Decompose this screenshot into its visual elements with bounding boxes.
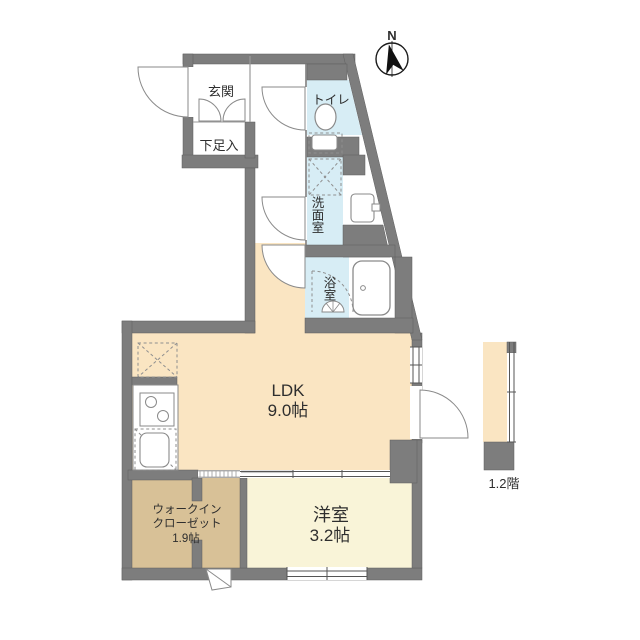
- door-swing-icon-east: [420, 390, 468, 438]
- wall-west-genkan: [183, 117, 193, 157]
- wall-wic-stub-top: [192, 478, 202, 501]
- north-arrow-icon: N: [376, 28, 408, 77]
- room-label-washroom: 洗面室: [312, 196, 325, 235]
- room-label-shoe: 下足入: [199, 138, 238, 153]
- room-size-wic: 1.9帖: [172, 531, 200, 545]
- door-swing-icon-toilet: [262, 87, 305, 130]
- wall-kitchen-stub: [132, 377, 177, 385]
- wall-wash-bath-divider: [305, 245, 395, 257]
- wall-bath-south: [305, 318, 413, 333]
- wall-bottom: [122, 568, 422, 580]
- wall-west-stub: [183, 54, 193, 67]
- door-swing-icon-washroom: [262, 197, 305, 240]
- floorplan-image: N 玄関 下足入 トイレ 洗面室 浴室 LDK 9.0帖 洋室 3.2帖 ウォー…: [0, 0, 640, 640]
- room-label-wic-2: クローゼット: [153, 517, 222, 530]
- louver-opening-symbol: [198, 470, 240, 478]
- wall-corridor-west: [245, 168, 255, 333]
- door-swing-icon-wic-south: [206, 569, 231, 590]
- wall-toilet-north: [307, 64, 347, 80]
- room-label-genkan: 玄関: [208, 84, 234, 99]
- stove-icon: [140, 393, 174, 426]
- wall-west: [122, 321, 132, 580]
- sliding-door-symbol: [240, 470, 390, 478]
- wall-wic-north: [128, 470, 198, 480]
- wall-pan-east: [343, 155, 365, 175]
- room-label-wic-1: ウォークイン: [153, 503, 222, 516]
- wall-top: [183, 54, 355, 64]
- floorplan-page: N 玄関 下足入 トイレ 洗面室 浴室 LDK 9.0帖 洋室 3.2帖 ウォー…: [0, 0, 640, 640]
- wall-stair-block: [484, 442, 514, 470]
- wall-stair-cap: [507, 342, 516, 353]
- window-symbol-stair: [507, 342, 516, 442]
- stair-strip-floor: [483, 342, 508, 442]
- wall-east-block: [390, 440, 417, 483]
- bathtub-icon: [353, 261, 390, 315]
- room-label-ldk: LDK: [271, 381, 305, 400]
- compass-n-label: N: [387, 28, 396, 43]
- wall-wic-western-divider: [240, 478, 247, 568]
- door-swing-icon-entrance: [138, 67, 188, 117]
- room-label-toilet: トイレ: [312, 93, 350, 107]
- kitchen-counter-icon: [133, 385, 178, 470]
- room-size-ldk: 9.0帖: [268, 401, 309, 420]
- room-label-bath: 浴室: [324, 276, 337, 303]
- wall-shoe-east: [245, 122, 255, 158]
- room-label-western: 洋室: [313, 505, 349, 525]
- floor-note-label: 1.2階: [488, 476, 519, 491]
- window-symbol-east: [410, 347, 422, 383]
- room-size-western: 3.2帖: [310, 526, 351, 545]
- door-swing-icon-shoe-right: [223, 99, 245, 121]
- wall-ldk-topleft: [122, 321, 255, 333]
- window-symbol-south: [287, 567, 367, 580]
- door-swing-icon-shoe-left: [199, 99, 221, 121]
